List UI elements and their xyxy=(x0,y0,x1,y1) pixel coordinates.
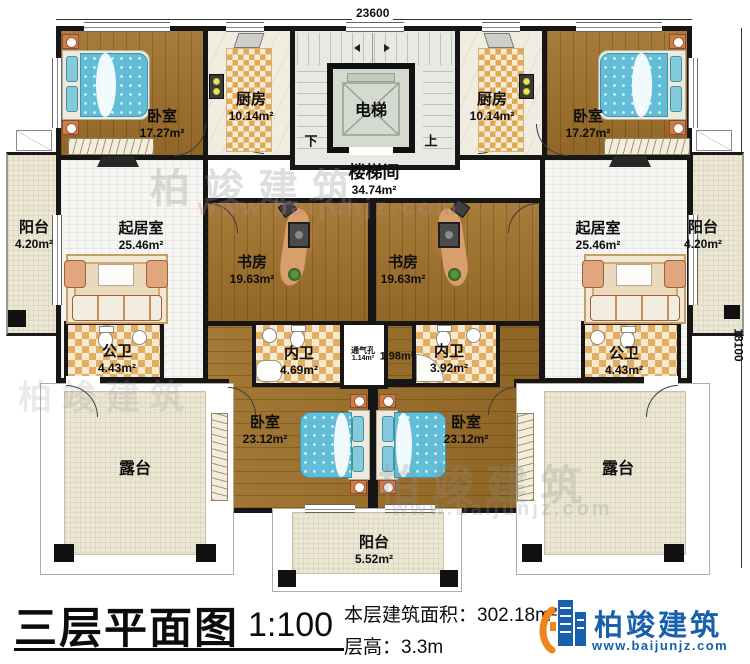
room-name: 阳台 xyxy=(684,219,722,237)
room-name: 书房 xyxy=(230,254,275,272)
room-name: 厨房 xyxy=(470,91,515,109)
computer-monitor-icon xyxy=(288,222,310,248)
pillow xyxy=(352,416,364,442)
room-area: 4.69m² xyxy=(280,363,318,377)
elevator-door-plate xyxy=(347,73,395,82)
room-area: 1.14m² xyxy=(351,356,375,364)
column-post xyxy=(54,544,74,562)
wardrobe xyxy=(604,138,690,155)
room-name: 内卫 xyxy=(430,343,468,361)
room-label-vent: 通气孔 1.14m² xyxy=(351,346,375,364)
room-name: 卧室 xyxy=(140,108,185,126)
room-area: 3.92m² xyxy=(430,361,468,375)
window xyxy=(346,22,404,32)
room-label-kitchen-l: 厨房 10.14m² xyxy=(229,91,274,123)
column-post xyxy=(196,544,216,562)
tv-icon xyxy=(97,156,139,167)
plan-scale: 1:100 xyxy=(248,606,333,645)
room-area: 4.43m² xyxy=(98,361,136,375)
window xyxy=(52,215,62,305)
room-area: 17.27m² xyxy=(566,126,611,140)
wardrobe xyxy=(517,413,534,501)
room-name: 卧室 xyxy=(243,414,288,432)
room-name: 电梯 xyxy=(355,103,387,122)
room-area: 4.43m² xyxy=(605,363,643,377)
stair-direction-arrow-right xyxy=(384,44,390,52)
pillow xyxy=(66,86,78,112)
room-label-bedroom-bl: 卧室 23.12m² xyxy=(243,414,288,446)
wardrobe xyxy=(211,413,228,501)
top-dimension-label: 23600 xyxy=(352,6,393,20)
stair-up-label: 上 xyxy=(424,133,437,148)
window xyxy=(226,22,264,32)
nightstand xyxy=(350,394,367,408)
room-name: 阳台 xyxy=(355,534,393,552)
title-underline xyxy=(14,648,344,651)
column-post xyxy=(8,310,26,327)
room-name: 起居室 xyxy=(575,220,620,238)
room-label-public-bath-l: 公卫 4.43m² xyxy=(98,343,136,375)
stair-down-label: 下 xyxy=(304,133,317,148)
sofa xyxy=(72,295,162,321)
kitchen-sink-icon xyxy=(234,33,265,48)
armchair xyxy=(146,260,168,288)
room-area: 4.20m² xyxy=(684,237,722,251)
column-post xyxy=(724,305,740,319)
shower-tray-icon xyxy=(256,360,282,382)
kitchen-sink-icon xyxy=(484,33,515,48)
room-name: 书房 xyxy=(381,254,426,272)
room-label-living-r: 起居室 25.46m² xyxy=(575,220,620,252)
room-label-public-bath-r: 公卫 4.43m² xyxy=(605,345,643,377)
nightstand xyxy=(379,394,396,408)
corridor-area-label: 1.98m² xyxy=(380,351,415,364)
sofa xyxy=(590,295,680,321)
room-name: 露台 xyxy=(602,461,634,480)
floor-plan-canvas: 23600 18100 xyxy=(0,0,750,664)
room-name: 起居室 xyxy=(118,220,163,238)
column-post xyxy=(664,544,684,562)
room-label-bedroom-tr: 卧室 17.27m² xyxy=(566,108,611,140)
room-label-terrace-r: 露台 xyxy=(602,461,634,480)
nightstand xyxy=(62,34,79,49)
room-name: 通气孔 xyxy=(351,346,375,355)
up-text: 上 xyxy=(424,133,437,148)
pillow xyxy=(382,446,394,472)
room-area: 19.63m² xyxy=(381,272,426,286)
room-label-study-r: 书房 19.63m² xyxy=(381,254,426,286)
room-area: 34.74m² xyxy=(349,183,400,197)
pillow xyxy=(66,56,78,82)
room-label-balcony-b: 阳台 5.52m² xyxy=(355,534,393,566)
coffee-table xyxy=(98,264,134,286)
stair-landing-divider xyxy=(372,33,373,65)
room-area: 1.98m² xyxy=(380,351,415,364)
window xyxy=(305,504,355,513)
column-post xyxy=(522,544,542,562)
plant-icon xyxy=(448,268,461,281)
sink-icon xyxy=(466,328,481,343)
stair-flight-top xyxy=(297,33,453,65)
room-label-living-l: 起居室 25.46m² xyxy=(118,220,163,252)
room-area: 10.14m² xyxy=(470,109,515,123)
room-label-bedroom-tl: 卧室 17.27m² xyxy=(140,108,185,140)
nightstand xyxy=(62,120,79,135)
room-label-bedroom-br: 卧室 23.12m² xyxy=(444,414,489,446)
floor-area-line: 本层建筑面积：302.18m² xyxy=(344,600,557,627)
stove-icon xyxy=(209,74,224,99)
armchair xyxy=(664,260,686,288)
room-area: 25.46m² xyxy=(118,238,163,252)
room-name: 卧室 xyxy=(444,414,489,432)
room-area: 4.20m² xyxy=(15,237,53,251)
right-dimension-label: 18100 xyxy=(732,324,746,365)
door-gap-terrace-left xyxy=(66,376,100,385)
room-name: 阳台 xyxy=(15,219,53,237)
pillow xyxy=(670,56,682,82)
floor-area-label: 本层建筑面积： xyxy=(344,605,477,626)
pillow xyxy=(352,446,364,472)
room-area: 19.63m² xyxy=(230,272,275,286)
armchair xyxy=(64,260,86,288)
room-area: 5.52m² xyxy=(355,552,393,566)
column-post xyxy=(440,570,458,587)
window xyxy=(52,58,62,128)
door-gap-terrace-right xyxy=(644,376,678,385)
computer-monitor-icon xyxy=(438,222,460,248)
room-area: 25.46m² xyxy=(575,238,620,252)
nightstand xyxy=(669,120,686,135)
room-label-inner-bath-l: 内卫 4.69m² xyxy=(280,345,318,377)
room-label-inner-bath-r: 内卫 3.92m² xyxy=(430,343,468,375)
room-label-study-l: 书房 19.63m² xyxy=(230,254,275,286)
room-area: 23.12m² xyxy=(243,432,288,446)
down-text: 下 xyxy=(304,133,317,148)
stair-direction-arrow-left xyxy=(354,44,360,52)
room-label-terrace-l: 露台 xyxy=(119,461,151,480)
room-name: 公卫 xyxy=(98,343,136,361)
elevator-door-gap xyxy=(349,147,393,155)
company-logo-url: www.baijunjz.com xyxy=(592,638,728,653)
floor-height-label: 层高： xyxy=(344,637,401,658)
tv-icon xyxy=(609,156,651,167)
room-name: 公卫 xyxy=(605,345,643,363)
plant-icon xyxy=(288,268,301,281)
window-sill-right xyxy=(696,130,732,151)
nightstand xyxy=(379,480,396,494)
armchair xyxy=(582,260,604,288)
plan-title: 三层平面图 xyxy=(14,594,239,656)
room-label-stairwell: 楼梯间 34.74m² xyxy=(349,163,400,197)
room-label-elevator: 电梯 xyxy=(355,103,387,122)
window xyxy=(84,22,170,32)
window xyxy=(482,22,520,32)
room-name: 露台 xyxy=(119,461,151,480)
nightstand xyxy=(350,480,367,494)
nightstand xyxy=(669,34,686,49)
room-name: 卧室 xyxy=(566,108,611,126)
window-sill-left xyxy=(16,130,52,151)
room-area: 10.14m² xyxy=(229,109,274,123)
floor-height-value: 3.3m xyxy=(401,637,443,658)
coffee-table xyxy=(616,264,652,286)
company-logo-icon xyxy=(538,594,592,658)
room-area: 17.27m² xyxy=(140,126,185,140)
pillow xyxy=(670,86,682,112)
room-area: 23.12m² xyxy=(444,432,489,446)
wardrobe xyxy=(68,138,154,155)
window xyxy=(688,58,698,128)
room-label-kitchen-r: 厨房 10.14m² xyxy=(470,91,515,123)
sink-icon xyxy=(262,328,277,343)
room-label-balcony-l: 阳台 4.20m² xyxy=(15,219,53,251)
floor-height-line: 层高：3.3m xyxy=(344,632,443,659)
room-label-balcony-r: 阳台 4.20m² xyxy=(684,219,722,251)
room-name: 楼梯间 xyxy=(349,163,400,183)
room-name: 厨房 xyxy=(229,91,274,109)
window xyxy=(385,504,435,513)
pillow xyxy=(382,416,394,442)
column-post xyxy=(278,570,296,587)
room-name: 内卫 xyxy=(280,345,318,363)
sink-icon xyxy=(590,330,605,345)
stove-icon xyxy=(519,74,534,99)
window xyxy=(576,22,662,32)
